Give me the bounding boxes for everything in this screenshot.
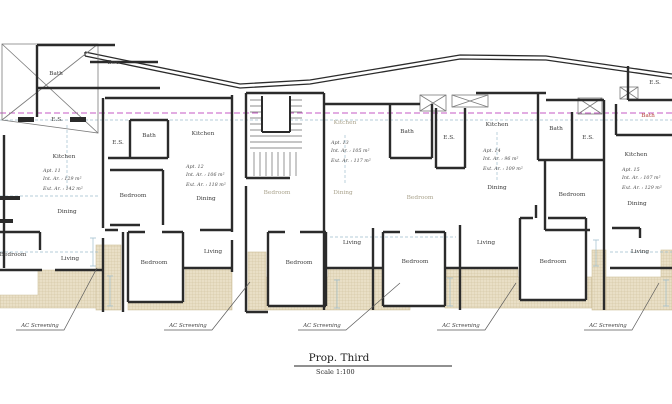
room-label-bedroom: Bedroom (141, 260, 168, 266)
ac-screening-label: AC Screening (20, 323, 59, 329)
room-label-dining: Dining (196, 196, 216, 202)
room-label-bedroom: Bedroom (540, 259, 567, 265)
title-block: Prop. Third Scale 1:100 (294, 352, 452, 376)
room-label-bath: Bath (549, 126, 563, 132)
apartment-12-annotation: Apt. 12 Int. Ar. : 106 m² Ext. Ar. : 118… (185, 164, 226, 188)
room-label-bedroom: Bedroom (559, 192, 586, 198)
svg-text:Ext. Ar. : 142 m²: Ext. Ar. : 142 m² (42, 186, 83, 192)
room-label-bath: Bath (400, 129, 414, 135)
room-label-bedroom: Bedroom (264, 190, 291, 196)
room-label-living: Living (204, 249, 223, 255)
apartment-15-annotation: Apt. 15 Int. Ar. : 107 m² Ext. Ar. : 129… (621, 167, 662, 191)
svg-text:Apt. 12: Apt. 12 (185, 164, 204, 170)
svg-text:Ext. Ar. : 129 m²: Ext. Ar. : 129 m² (621, 185, 662, 191)
svg-text:Apt. 11: Apt. 11 (42, 168, 61, 174)
room-label-bedroom: Bedroom (286, 260, 313, 266)
svg-text:Int. Ar. : 106 m²: Int. Ar. : 106 m² (185, 172, 225, 178)
apartment-13-annotation: Apt. 13 Int. Ar. : 105 m² Ext. Ar. : 117… (330, 140, 371, 164)
room-label-living: Living (61, 256, 80, 262)
drawing-scale: Scale 1:100 (316, 368, 355, 376)
apartment-11-annotation: Apt. 11 Int. Ar. : 129 m² Ext. Ar. : 142… (42, 168, 83, 192)
room-label-living: Living (477, 240, 496, 246)
apartment-14-annotation: Apt. 14 Int. Ar. : 96 m² Ext. Ar. : 109 … (482, 148, 523, 172)
svg-text:Ext. Ar. : 109 m²: Ext. Ar. : 109 m² (482, 166, 523, 172)
room-label-living: Living (631, 249, 650, 255)
room-label-bedroom: Bedroom (120, 193, 147, 199)
drawing-title: Prop. Third (309, 352, 370, 364)
room-label-kitchen: Kitchen (192, 131, 215, 137)
drawing-sheet: Bath Box E.S. Kitchen Dining Bedroom Liv… (0, 0, 672, 404)
floor-plan-canvas: Bath Box E.S. Kitchen Dining Bedroom Liv… (0, 0, 672, 404)
ac-screening-label: AC Screening (302, 323, 341, 329)
room-label-es: E.S. (582, 135, 594, 141)
room-label-es: E.S. (51, 117, 63, 123)
room-label-kitchen: Kitchen (625, 152, 648, 158)
svg-text:Apt. 13: Apt. 13 (330, 140, 349, 146)
room-label-dining: Dining (627, 201, 647, 207)
room-label-bath: Bath (142, 133, 156, 139)
room-label-bedroom: Bedroom (402, 259, 429, 265)
svg-text:Apt. 14: Apt. 14 (482, 148, 501, 154)
room-label-dining: Dining (487, 185, 507, 191)
room-label-es: E.S. (649, 80, 661, 86)
svg-text:Int. Ar. : 96 m²: Int. Ar. : 96 m² (482, 156, 519, 162)
svg-text:Ext. Ar. : 118 m²: Ext. Ar. : 118 m² (185, 182, 226, 188)
apartment-annotations: Apt. 11 Int. Ar. : 129 m² Ext. Ar. : 142… (42, 140, 662, 192)
svg-text:Ext. Ar. : 117 m²: Ext. Ar. : 117 m² (330, 158, 371, 164)
ac-screening-label: AC Screening (588, 323, 627, 329)
sloped-roof-wall (85, 52, 672, 88)
svg-text:Int. Ar. : 105 m²: Int. Ar. : 105 m² (330, 148, 370, 154)
room-label-bedroom: Bedroom (0, 252, 27, 258)
svg-text:Int. Ar. : 107 m²: Int. Ar. : 107 m² (621, 175, 661, 181)
room-label-box: Box (107, 60, 119, 66)
room-label-kitchen: Kitchen (334, 120, 357, 126)
svg-text:Int. Ar. : 129 m²: Int. Ar. : 129 m² (42, 176, 82, 182)
room-label-es: E.S. (112, 140, 124, 146)
room-label-kitchen: Kitchen (486, 122, 509, 128)
room-label-living: Living (343, 240, 362, 246)
ac-screening-label: AC Screening (441, 323, 480, 329)
staircase (250, 96, 302, 176)
ac-screening-label: AC Screening (168, 323, 207, 329)
room-label-dining: Dining (57, 209, 77, 215)
room-label-kitchen: Kitchen (53, 154, 76, 160)
room-label-dining: Dining (333, 190, 353, 196)
svg-text:Apt. 15: Apt. 15 (621, 167, 640, 173)
room-label-bedroom: Bedroom (407, 195, 434, 201)
room-label-es: E.S. (443, 135, 455, 141)
room-label-bath: Bath (641, 113, 655, 119)
room-label-bath: Bath (49, 71, 63, 77)
